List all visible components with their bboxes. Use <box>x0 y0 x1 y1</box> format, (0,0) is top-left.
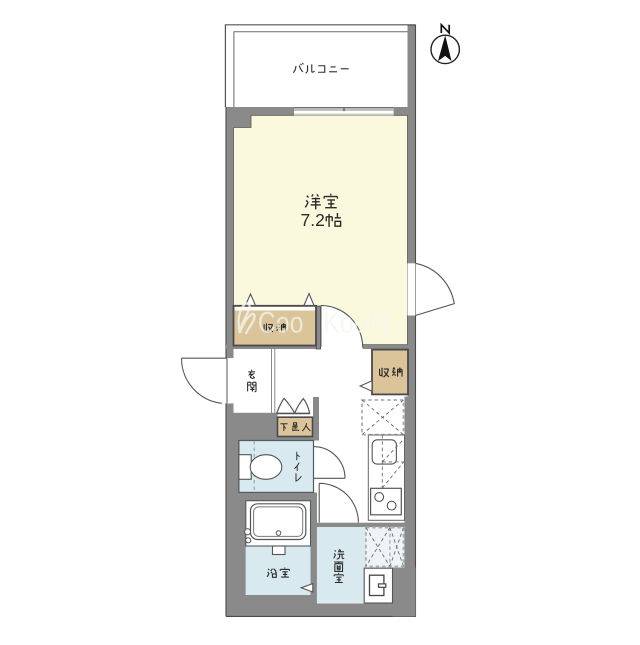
svg-text:7.2: 7.2 <box>301 210 325 230</box>
svg-text:Coo: Coo <box>258 305 304 339</box>
svg-text:KooM: KooM <box>323 305 388 339</box>
